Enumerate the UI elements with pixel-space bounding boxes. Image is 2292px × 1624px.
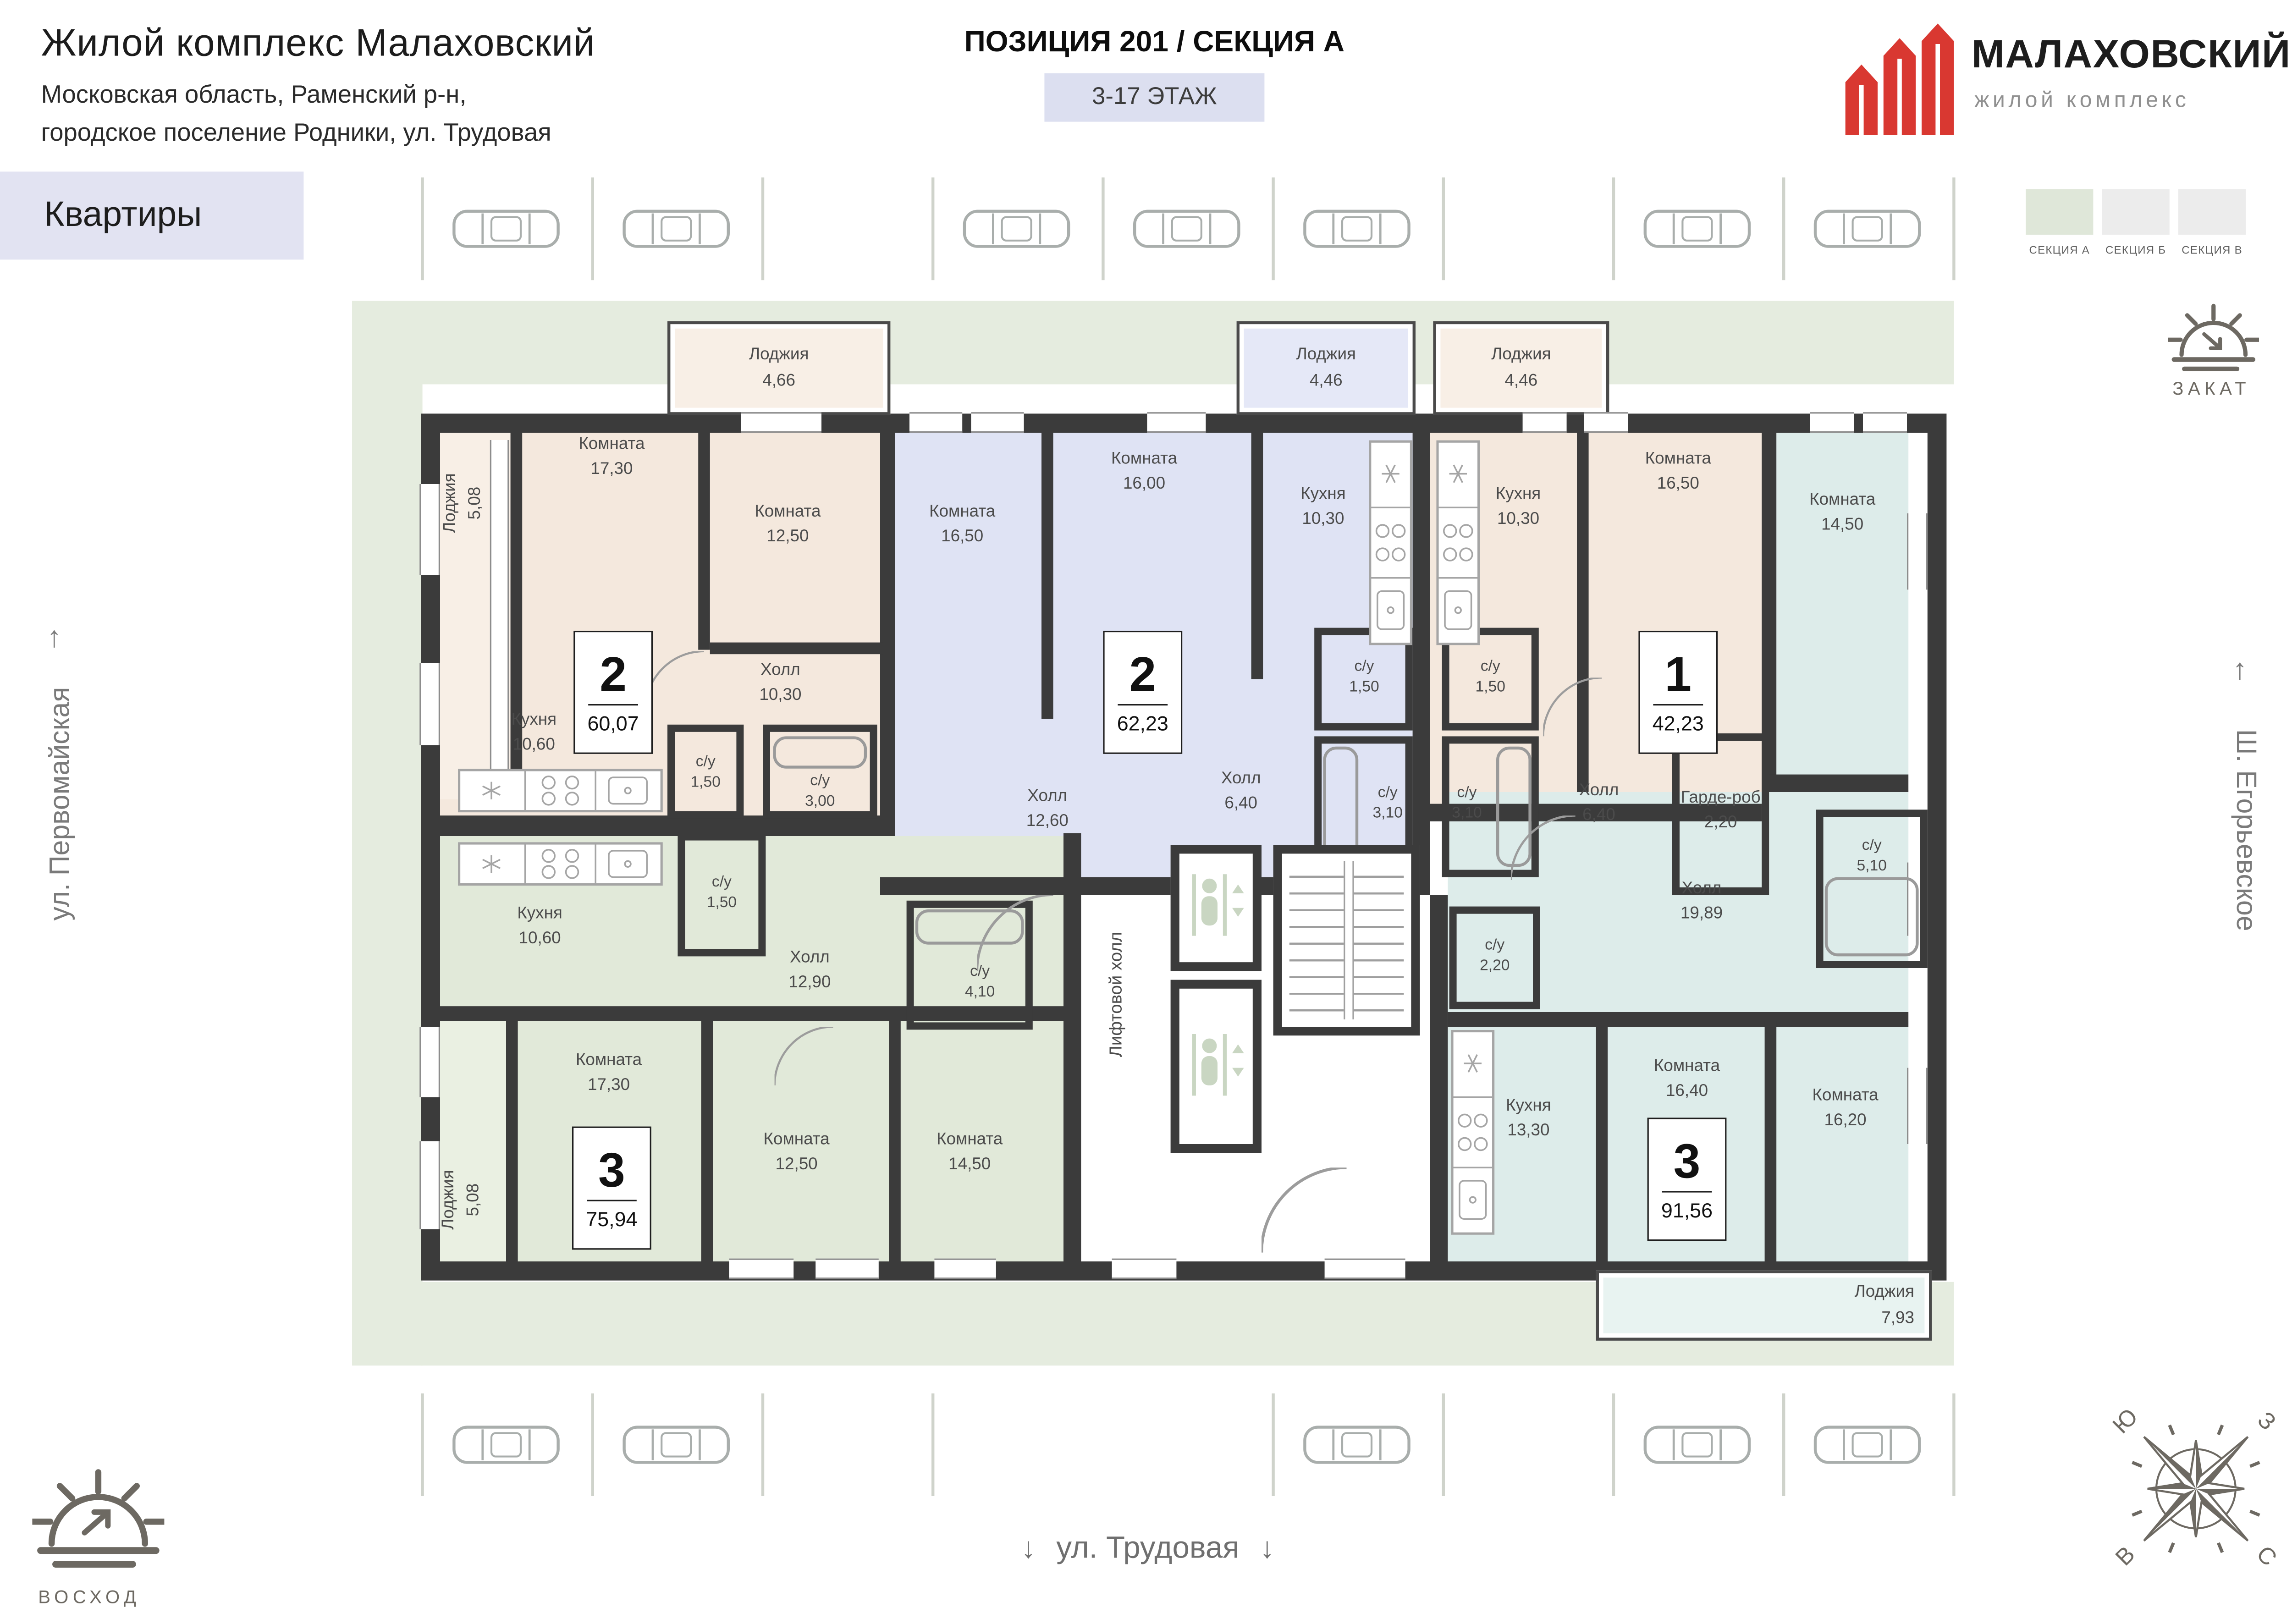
apt-a-room2-label: Комната12,50 [755, 502, 821, 549]
room-name: Холл [1221, 769, 1261, 790]
sunrise-label: ВОСХОД [38, 1587, 140, 1607]
room-area: 14,50 [1821, 516, 1863, 537]
room-area: 12,50 [776, 1155, 818, 1176]
wall [710, 643, 883, 655]
parking-divider [591, 1393, 594, 1496]
stairwell [1273, 845, 1420, 1035]
parking-divider [1612, 1393, 1615, 1496]
window [1907, 513, 1928, 589]
car-icon [621, 204, 732, 254]
apt-b-room1-label: Комната16,50 [929, 502, 995, 549]
room-name: с/у [1485, 936, 1504, 956]
room-name: Комната [1645, 449, 1711, 470]
parking-divider [1442, 1393, 1445, 1496]
page-subtitle: Московская область, Раменский р-н, город… [41, 76, 551, 152]
apt-c-badge[interactable]: 142,23 [1638, 631, 1718, 754]
room-name: Лоджия [1855, 1282, 1914, 1303]
bathtub-icon [773, 736, 867, 768]
parking-divider [931, 1393, 934, 1496]
apt-d-kitchen-label: Кухня10,60 [517, 904, 562, 951]
kitchen-appliances-icon [457, 769, 663, 813]
apt-e-badge[interactable]: 391,56 [1647, 1118, 1727, 1241]
subtitle-line2: городское поселение Родники, ул. Трудова… [41, 115, 551, 153]
apt-c-wardrobe-label: Гарде-роб2,20 [1678, 788, 1763, 835]
room-area: 7,93 [1881, 1308, 1914, 1329]
room-area: 16,00 [1123, 474, 1165, 495]
room-name: с/у [1355, 658, 1374, 677]
parking-row-top [421, 177, 1952, 280]
door-arc [977, 895, 1053, 971]
apt-d-hall-label: Холл12,90 [788, 948, 831, 995]
room-area: 16,40 [1666, 1082, 1708, 1103]
legend-swatch-v [2178, 189, 2246, 235]
window [419, 484, 440, 575]
apt-d-room2-label: Комната12,50 [764, 1129, 830, 1176]
sunrise-icon [32, 1467, 164, 1574]
room-name: Комната [1813, 1085, 1879, 1107]
parking-divider [1612, 177, 1615, 280]
apt-d-room3-label: Комната14,50 [937, 1129, 1003, 1176]
room-name: Лоджия [439, 1170, 460, 1229]
parking-divider [1272, 177, 1274, 280]
window [729, 1259, 793, 1279]
apt-e-room1-label: Комната14,50 [1809, 490, 1875, 537]
room-area: 1,50 [1349, 678, 1379, 698]
wall [1448, 1012, 1908, 1027]
apt-b-room2-label: Комната16,00 [1111, 449, 1177, 496]
badge-divider [587, 1200, 637, 1202]
room-name: Комната [1809, 490, 1875, 511]
parking-divider [1952, 177, 1955, 280]
room-area: 10,60 [513, 736, 555, 757]
landscaping-strip-left [352, 301, 423, 1365]
kitchen-appliances-icon [1369, 440, 1413, 645]
street-right-label: Ш. Егорьевское [2228, 729, 2260, 931]
room-area: 4,66 [762, 370, 795, 391]
apt-b-kitchen-label: Кухня10,30 [1300, 484, 1346, 531]
door-arc [645, 651, 704, 710]
kitchen-appliances-icon [1451, 1029, 1495, 1235]
room-name: Комната [1654, 1056, 1720, 1077]
street-bottom-label: ул. Трудовая [1056, 1531, 1239, 1567]
apt-a-room1-label: Комната17,30 [579, 435, 645, 481]
room-area: 2,20 [1480, 957, 1510, 976]
parking-divider [591, 177, 594, 280]
window [419, 1027, 440, 1097]
compass-icon: Ю З В С [2100, 1393, 2291, 1584]
window [419, 1141, 440, 1229]
apt-d-loggia-label: Лоджия5,08 [439, 1170, 485, 1229]
legend-label-a: СЕКЦИЯ А [2029, 243, 2090, 257]
room-area: 10,30 [1302, 510, 1344, 531]
room-area: 12,50 [766, 527, 809, 548]
apt-rooms-count: 2 [600, 650, 627, 698]
loggia-label: Лоджия4,46 [1296, 345, 1356, 391]
parking-divider [1782, 1393, 1785, 1496]
stair-rail [1343, 861, 1353, 1019]
wall [1413, 433, 1430, 880]
apt-rooms-count: 1 [1664, 650, 1691, 698]
room-name: Комната [755, 502, 821, 523]
legend-section-a[interactable]: СЕКЦИЯ А [2024, 189, 2095, 257]
room-name: Холл [1682, 879, 1722, 900]
apt-a-loggia-top-box: Лоджия4,66 [667, 321, 890, 415]
subtitle-line1: Московская область, Раменский р-н, [41, 76, 551, 114]
apt-c-loggia-top-box: Лоджия4,46 [1433, 321, 1609, 415]
tab-apartments-label: Квартиры [44, 195, 202, 237]
loggia-label: Лоджия7,93 [1855, 1282, 1914, 1329]
elevator-icon [1191, 1027, 1247, 1103]
wall [1041, 433, 1053, 719]
apt-a-badge[interactable]: 260,07 [573, 631, 653, 754]
room-area: 12,90 [788, 973, 831, 994]
wall [889, 1021, 901, 1261]
apt-a-kitchen-label: Кухня10,60 [512, 710, 557, 757]
room-name: Комната [576, 1051, 642, 1072]
room-name: Лоджия [1491, 345, 1551, 366]
apt-total-area: 75,94 [586, 1208, 637, 1231]
apt-a-loggia-side-label: Лоджия5,08 [440, 473, 487, 533]
room-name: с/у [712, 873, 732, 892]
room-name: Холл [1579, 781, 1619, 802]
room-name: Лоджия [749, 345, 809, 366]
room-area: 10,30 [759, 686, 801, 707]
window [1810, 412, 1854, 433]
room-name: Комната [579, 435, 645, 456]
street-right-arrow: ↑ [2232, 654, 2247, 688]
room-area: 6,40 [1224, 794, 1257, 815]
room-name: Комната [929, 502, 995, 523]
room-area: 13,30 [1507, 1121, 1549, 1142]
room-name: с/у [696, 753, 716, 772]
legend-section-v[interactable]: СЕКЦИЯ В [2177, 189, 2248, 257]
car-icon [1301, 1420, 1412, 1470]
room-area: 17,30 [588, 1076, 630, 1097]
apt-c-hall-label: Холл6,40 [1579, 781, 1619, 827]
window [1584, 412, 1628, 433]
room-name: с/у [1862, 837, 1882, 856]
legend-swatch-a [2026, 189, 2093, 235]
room-name: Кухня [1506, 1096, 1551, 1117]
apt-total-area: 91,56 [1661, 1199, 1713, 1222]
wall [1765, 1021, 1777, 1261]
compass-east-label: В [2110, 1541, 2140, 1570]
room-area: 14,50 [948, 1155, 991, 1176]
car-icon [450, 204, 562, 254]
room-name: с/у [1481, 658, 1500, 677]
wall [440, 815, 880, 836]
room-area: 10,60 [519, 929, 561, 950]
page-title: Жилой комплекс Малаховский [41, 21, 595, 66]
bathtub-icon [1825, 877, 1919, 957]
window [1907, 1068, 1928, 1144]
door-arc [775, 1027, 833, 1085]
tab-apartments[interactable]: Квартиры [0, 171, 303, 259]
apt-c-kitchen-label: Кухня10,30 [1496, 484, 1541, 531]
apt-total-area: 62,23 [1117, 712, 1168, 735]
room-name: с/у [1457, 784, 1477, 803]
room-area: 4,10 [965, 984, 995, 1003]
window [1112, 1259, 1177, 1279]
apt-c-room1-label: Комната16,50 [1645, 449, 1711, 496]
room-name: Кухня [512, 710, 557, 731]
apt-e-hall-label: Холл19,89 [1680, 879, 1723, 925]
apt-a-wc1-label: с/у1,50 [691, 753, 721, 793]
car-icon [961, 204, 1072, 254]
car-icon [1812, 204, 1923, 254]
apt-d-wc2-label: с/у4,10 [965, 963, 995, 1002]
wall [701, 1021, 713, 1261]
apt-a-hall-label: Холл10,30 [759, 660, 801, 707]
parking-divider [931, 177, 934, 280]
room-name: Комната [764, 1129, 830, 1151]
wall [506, 1012, 518, 1261]
room-area: 12,60 [1026, 812, 1069, 833]
room-name: Лоджия [440, 473, 461, 533]
compass-north-label: С [2252, 1541, 2282, 1571]
sunset-label: ЗАКАТ [2172, 379, 2250, 399]
room-area: 1,50 [691, 774, 721, 793]
apt-c-wc2-label: с/у3,10 [1452, 784, 1482, 824]
window [1523, 412, 1567, 433]
apt-b-loggia-top-box: Лоджия4,46 [1237, 321, 1416, 415]
core-label-text: Лифтовой холл [1105, 932, 1127, 1057]
room-area: 5,08 [464, 1184, 485, 1217]
room-name: Кухня [1496, 484, 1541, 505]
parking-divider [1272, 1393, 1274, 1496]
wall [1765, 775, 1909, 792]
room-area: 16,50 [1657, 474, 1699, 495]
wall [1577, 433, 1589, 792]
room-name: с/у [810, 772, 830, 791]
floor-range-chip[interactable]: 3-17 ЭТАЖ [1044, 73, 1264, 122]
room-name: Кухня [1300, 484, 1346, 505]
room-name: Лоджия [1296, 345, 1356, 366]
logo-icon [1846, 21, 1957, 135]
window [971, 412, 1024, 433]
wall [1063, 833, 1081, 1261]
window [1863, 412, 1907, 433]
wall [698, 433, 710, 650]
position-heading: ПОЗИЦИЯ 201 / СЕКЦИЯ А [934, 27, 1374, 61]
apt-e-wc2-label: с/у2,20 [1480, 936, 1510, 976]
parking-divider [421, 177, 424, 280]
window [1147, 412, 1206, 433]
room-name: Холл [790, 948, 830, 969]
parking-divider [761, 177, 764, 280]
room-area: 1,50 [707, 894, 737, 913]
apt-d-wc1-label: с/у1,50 [707, 873, 737, 913]
car-icon [1131, 204, 1242, 254]
apt-b-wc2-label: с/у3,10 [1373, 784, 1403, 824]
apt-rooms-count: 3 [598, 1145, 625, 1194]
apt-b-badge[interactable]: 262,23 [1103, 631, 1182, 754]
room-area: 16,50 [941, 527, 983, 548]
room-name: с/у [970, 963, 990, 982]
compass-south-label: Ю [2107, 1403, 2143, 1438]
wall [1251, 433, 1263, 679]
apt-b-hall1-label: Холл12,60 [1026, 787, 1069, 833]
apt-e-room2-label: Комната16,40 [1654, 1056, 1720, 1103]
apt-b-wc1-label: с/у1,50 [1349, 658, 1379, 698]
room-area: 5,10 [1857, 857, 1887, 876]
room-area: 3,10 [1373, 804, 1403, 824]
room-name: Гарде-роб [1678, 788, 1763, 809]
room-area: 3,10 [1452, 804, 1482, 824]
window [490, 440, 509, 792]
parking-divider [421, 1393, 424, 1496]
door-arc [1543, 677, 1602, 736]
street-bottom: ↓ ул. Трудовая ↓ [0, 1531, 2292, 1567]
parking-divider [1442, 177, 1445, 280]
street-bottom-arrow-right: ↓ [1260, 1532, 1274, 1566]
logo-tagline: жилой комплекс [1974, 88, 2189, 113]
entrance-door [1325, 1259, 1405, 1279]
floorplan-page: Жилой комплекс Малаховский Московская об… [0, 0, 2292, 1624]
street-left-arrow: ↑ [47, 622, 61, 656]
window [934, 1259, 996, 1279]
wall [1596, 1021, 1608, 1261]
room-name: с/у [1378, 784, 1398, 803]
badge-divider [1118, 704, 1168, 706]
loggia-label: Лоджия4,46 [1491, 345, 1551, 391]
legend-section-b[interactable]: СЕКЦИЯ Б [2100, 189, 2171, 257]
parking-divider [1102, 177, 1104, 280]
apt-e-wc1-label: с/у5,10 [1857, 837, 1887, 876]
door-arc [1262, 1167, 1347, 1253]
core-elevator-hall-label: Лифтовой холл [1105, 932, 1127, 1057]
loggia-label: Лоджия4,66 [749, 345, 809, 391]
apt-a-wc2-label: с/у3,00 [805, 772, 835, 812]
room-name: Кухня [517, 904, 562, 925]
badge-divider [1653, 704, 1703, 706]
room-area: 19,89 [1680, 904, 1723, 925]
landscaping-strip-top [421, 301, 1954, 384]
wall [1430, 895, 1448, 1261]
legend-label-v: СЕКЦИЯ В [2182, 243, 2242, 257]
car-icon [450, 1420, 562, 1470]
car-icon [1642, 1420, 1753, 1470]
door-arc [1511, 815, 1576, 880]
apt-e-loggia-box: Лоджия7,93 [1596, 1270, 1932, 1341]
wall [880, 433, 895, 836]
legend-label-b: СЕКЦИЯ Б [2105, 243, 2166, 257]
room-area: 3,00 [805, 793, 835, 812]
car-icon [1812, 1420, 1923, 1470]
parking-divider [1952, 1393, 1955, 1496]
apt-d-room1-label: Комната17,30 [576, 1051, 642, 1097]
apt-b-hall2-label: Холл6,40 [1221, 769, 1261, 815]
legend-swatch-b [2102, 189, 2170, 235]
apt-c-wc1-label: с/у1,50 [1476, 658, 1505, 698]
apt-total-area: 42,23 [1653, 712, 1704, 735]
apt-rooms-count: 2 [1129, 650, 1156, 698]
badge-divider [1662, 1190, 1712, 1193]
street-bottom-arrow-left: ↓ [1021, 1532, 1036, 1566]
window [815, 1259, 879, 1279]
window [419, 663, 440, 745]
room-area: 4,46 [1505, 370, 1538, 391]
car-icon [1642, 204, 1753, 254]
room-name: Холл [1027, 787, 1067, 808]
sunset-icon [2168, 302, 2259, 375]
apt-e-room3-label: Комната16,20 [1813, 1085, 1879, 1132]
compass-west-label: З [2253, 1407, 2281, 1435]
room-area: 2,20 [1704, 813, 1737, 834]
apt-e-area-top [1776, 433, 1908, 775]
badge-divider [588, 704, 638, 706]
room-area: 6,40 [1582, 806, 1615, 827]
room-name: Комната [937, 1129, 1003, 1151]
room-area: 16,20 [1824, 1111, 1867, 1132]
section-legend: СЕКЦИЯ А СЕКЦИЯ Б СЕКЦИЯ В [2024, 189, 2247, 257]
room-area: 5,08 [466, 487, 487, 520]
room-area: 4,46 [1310, 370, 1343, 391]
kitchen-appliances-icon [457, 842, 663, 886]
room-name: Холл [760, 660, 800, 681]
apt-rooms-count: 3 [1674, 1136, 1701, 1185]
window [741, 412, 821, 433]
street-left-label: ул. Первомайская [45, 687, 77, 921]
elevator-icon [1191, 868, 1247, 941]
parking-divider [761, 1393, 764, 1496]
window [909, 412, 962, 433]
parking-divider [1782, 177, 1785, 280]
room-area: 17,30 [590, 460, 633, 481]
room-name: Комната [1111, 449, 1177, 470]
apt-e-kitchen-label: Кухня13,30 [1506, 1096, 1551, 1143]
apt-d-badge[interactable]: 375,94 [572, 1127, 651, 1250]
car-icon [621, 1420, 732, 1470]
apt-total-area: 60,07 [588, 712, 639, 735]
room-area: 1,50 [1476, 678, 1505, 698]
parking-row-bottom [421, 1393, 1952, 1496]
room-area: 10,30 [1497, 510, 1539, 531]
kitchen-appliances-icon [1436, 440, 1480, 645]
car-icon [1301, 204, 1412, 254]
logo-name: МАЛАХОВСКИЙ [1972, 32, 2291, 77]
